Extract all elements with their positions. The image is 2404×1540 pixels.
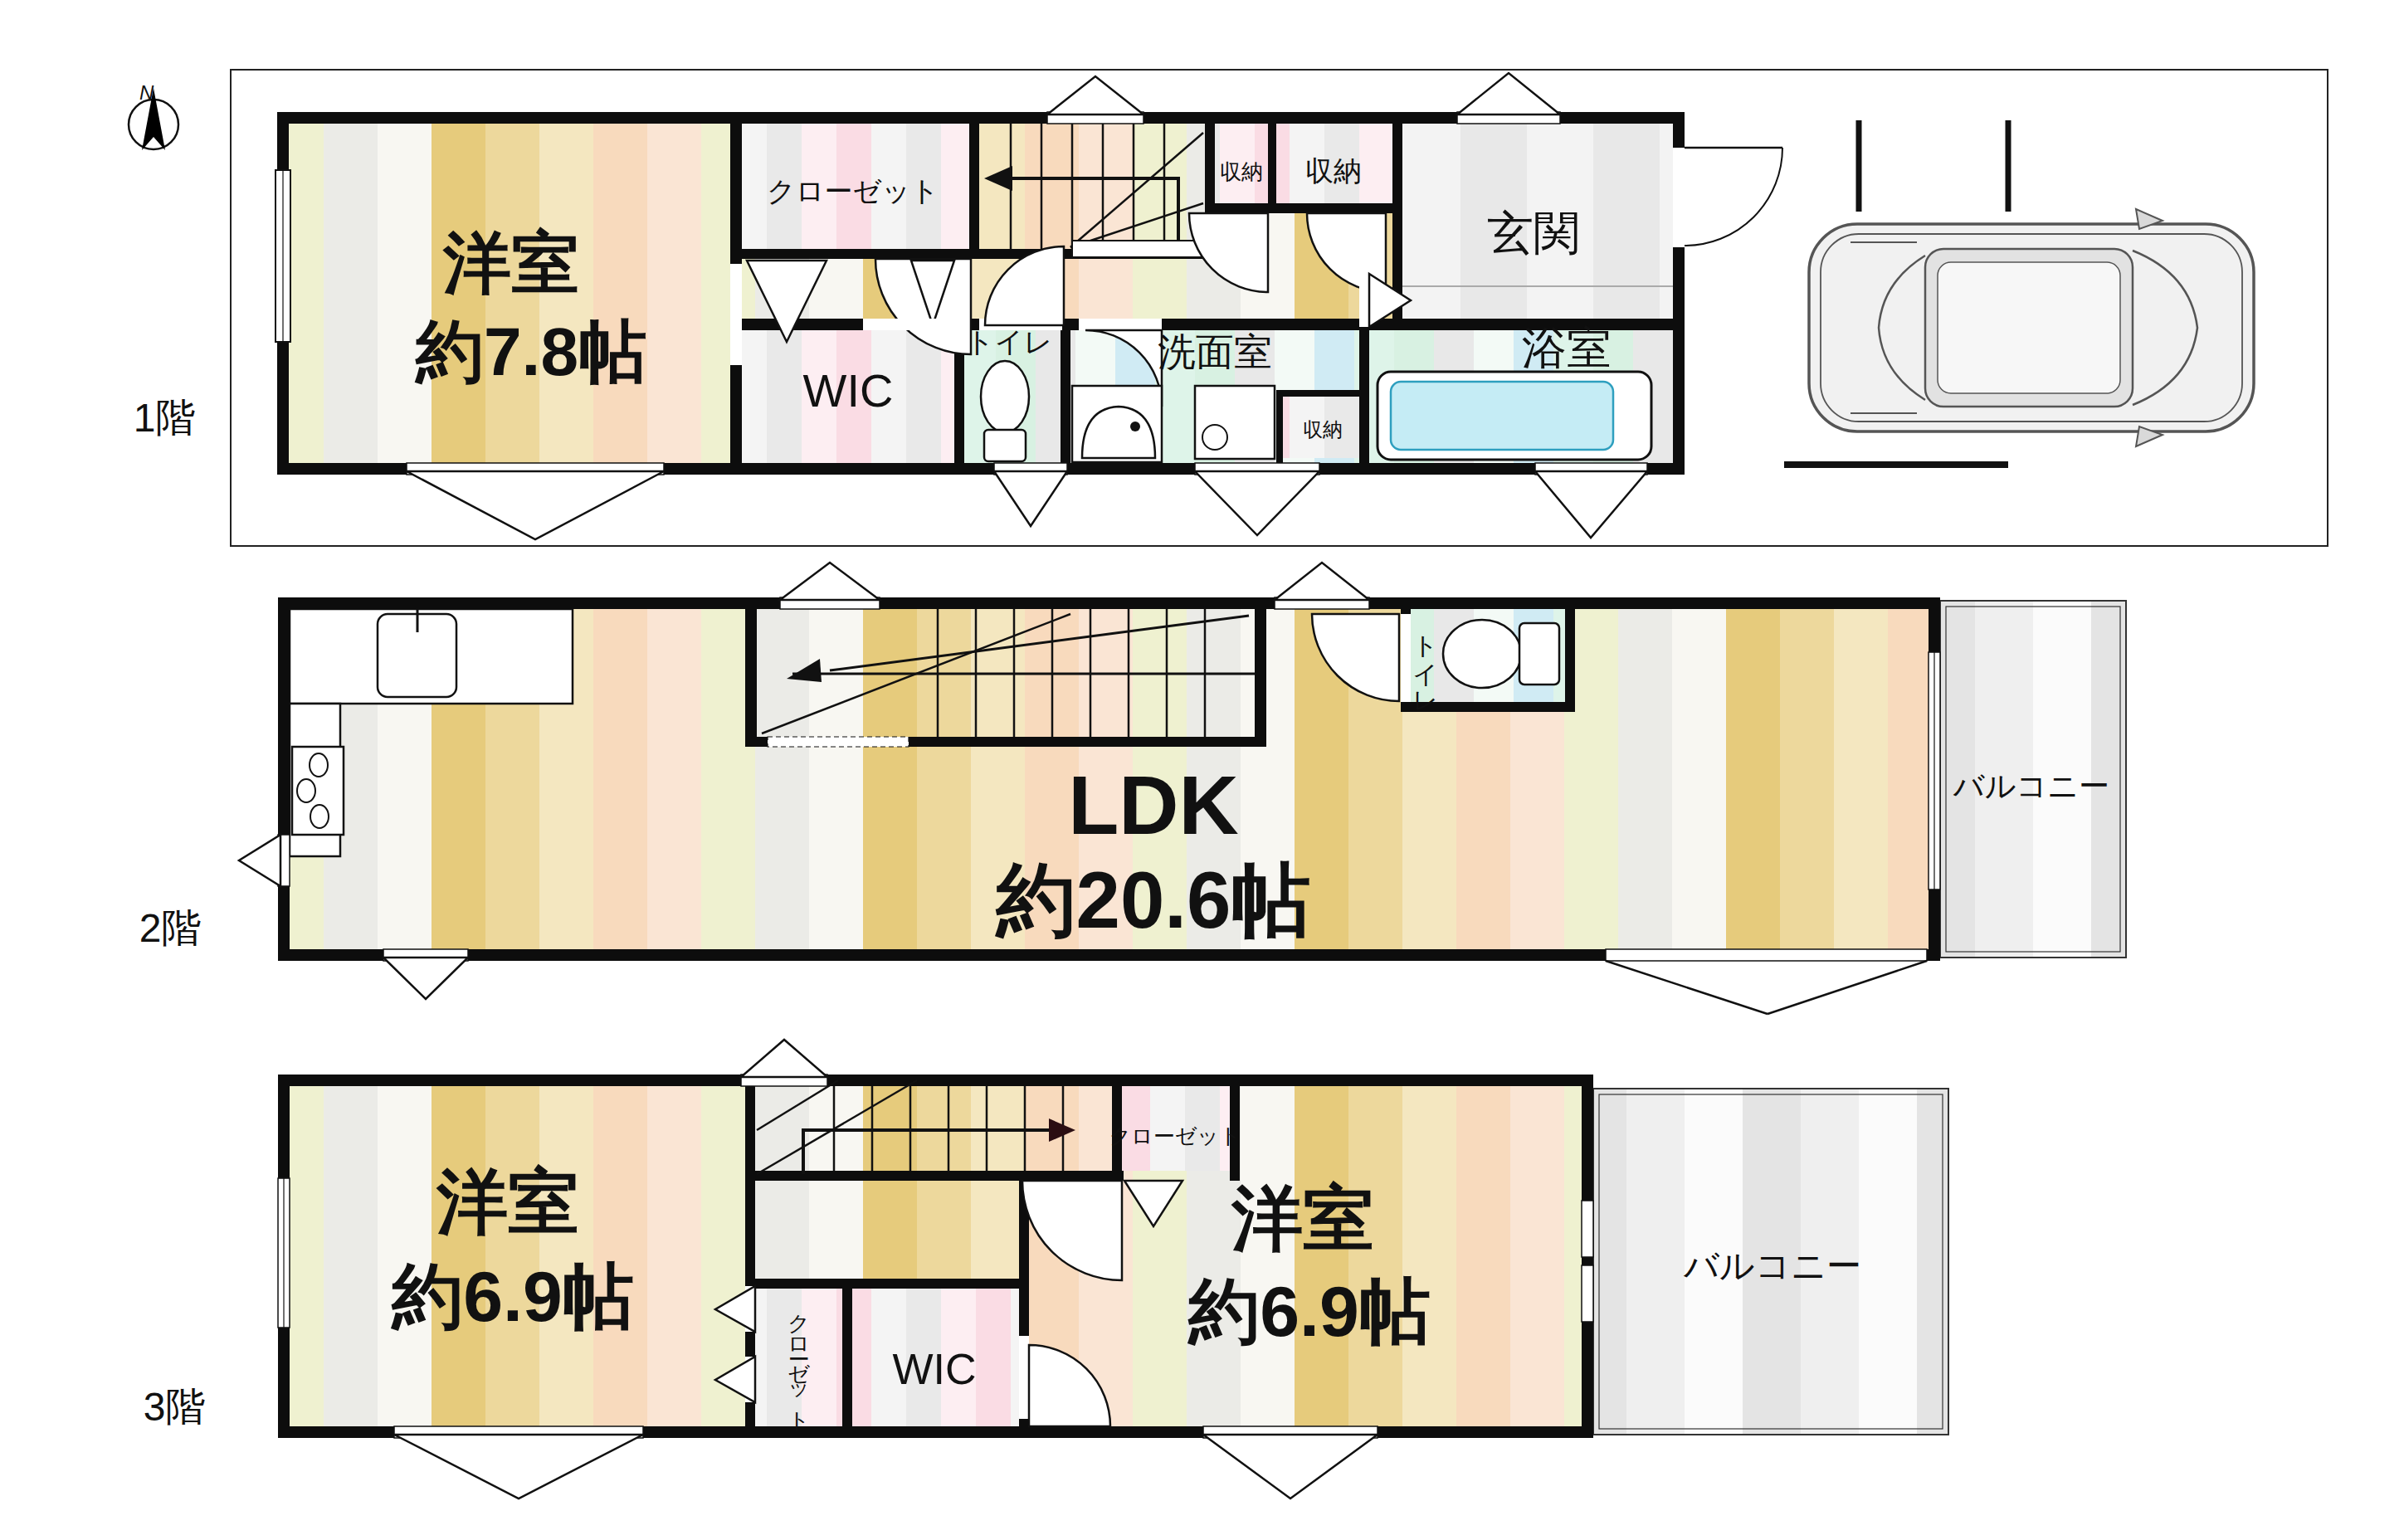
compass-north-label: N [139, 81, 154, 104]
floor3-label: 3階 [144, 1385, 206, 1429]
floor1-wic-label: WIC [803, 364, 894, 417]
parking-area [1784, 120, 2254, 465]
floor1-western-room-size: 約7.8帖 [414, 314, 646, 389]
floor1-washroom-label: 洗面室 [1158, 330, 1272, 373]
floor1-washer-pan-icon [1195, 386, 1275, 459]
floor-plan-page: N 1階 [0, 0, 2404, 1540]
floor3-closet-lower-label: クローゼット [787, 1299, 812, 1430]
car-icon [1809, 209, 2254, 446]
floor1-western-room-label: 洋室 [442, 225, 579, 300]
floor3-western-left-label: 洋室 [436, 1162, 579, 1241]
floor3-wic-label: WIC [892, 1345, 976, 1393]
floor2-toilet-label: トイレ [1412, 617, 1440, 710]
floor3-western-right-size: 約6.9帖 [1187, 1271, 1431, 1351]
floor2-balcony-label: バルコニー [1953, 769, 2109, 803]
floor2-toilet-icon [1443, 620, 1559, 688]
floor3-western-left-size: 約6.9帖 [390, 1256, 634, 1336]
floor1-toilet-icon [981, 361, 1029, 461]
compass: N [129, 81, 178, 150]
floor2-ldk-label: LDK [1068, 758, 1239, 851]
floor1-stairs-area [979, 124, 1205, 249]
floor3-western-right-label: 洋室 [1231, 1178, 1374, 1258]
floor2-label: 2階 [139, 906, 202, 950]
floor1-closet-label: クローゼット [767, 175, 939, 207]
floor2-ldk-size: 約20.6帖 [995, 855, 1311, 944]
floor1-vanity-sink-icon [1072, 386, 1162, 462]
stove-icon [292, 747, 344, 835]
floor-plan-drawing: N 1階 [0, 0, 2404, 1540]
floor1-entrance-label: 玄関 [1487, 207, 1580, 259]
floor3-closet-upper-label: クローゼット [1109, 1123, 1241, 1148]
floor3-balcony-label: バルコニー [1683, 1246, 1861, 1285]
floor1-storage-b-label: 収納 [1305, 155, 1362, 187]
floor1-storage-c-label: 収納 [1303, 418, 1343, 441]
floor2-plan: 2階 バルコニー [139, 563, 2126, 1014]
floor1-storage-a-label: 収納 [1220, 159, 1263, 184]
floor1-bathtub-icon [1378, 372, 1651, 460]
floor1-bathroom-label: 浴室 [1522, 323, 1612, 373]
floor1-toilet-label: トイレ [966, 326, 1052, 358]
floor3-balcony: バルコニー [1593, 1089, 1948, 1435]
floor2-balcony: バルコニー [1940, 601, 2126, 958]
floor1-label: 1階 [134, 396, 196, 440]
floor3-plan: 3階 バルコニー [144, 1040, 1948, 1499]
